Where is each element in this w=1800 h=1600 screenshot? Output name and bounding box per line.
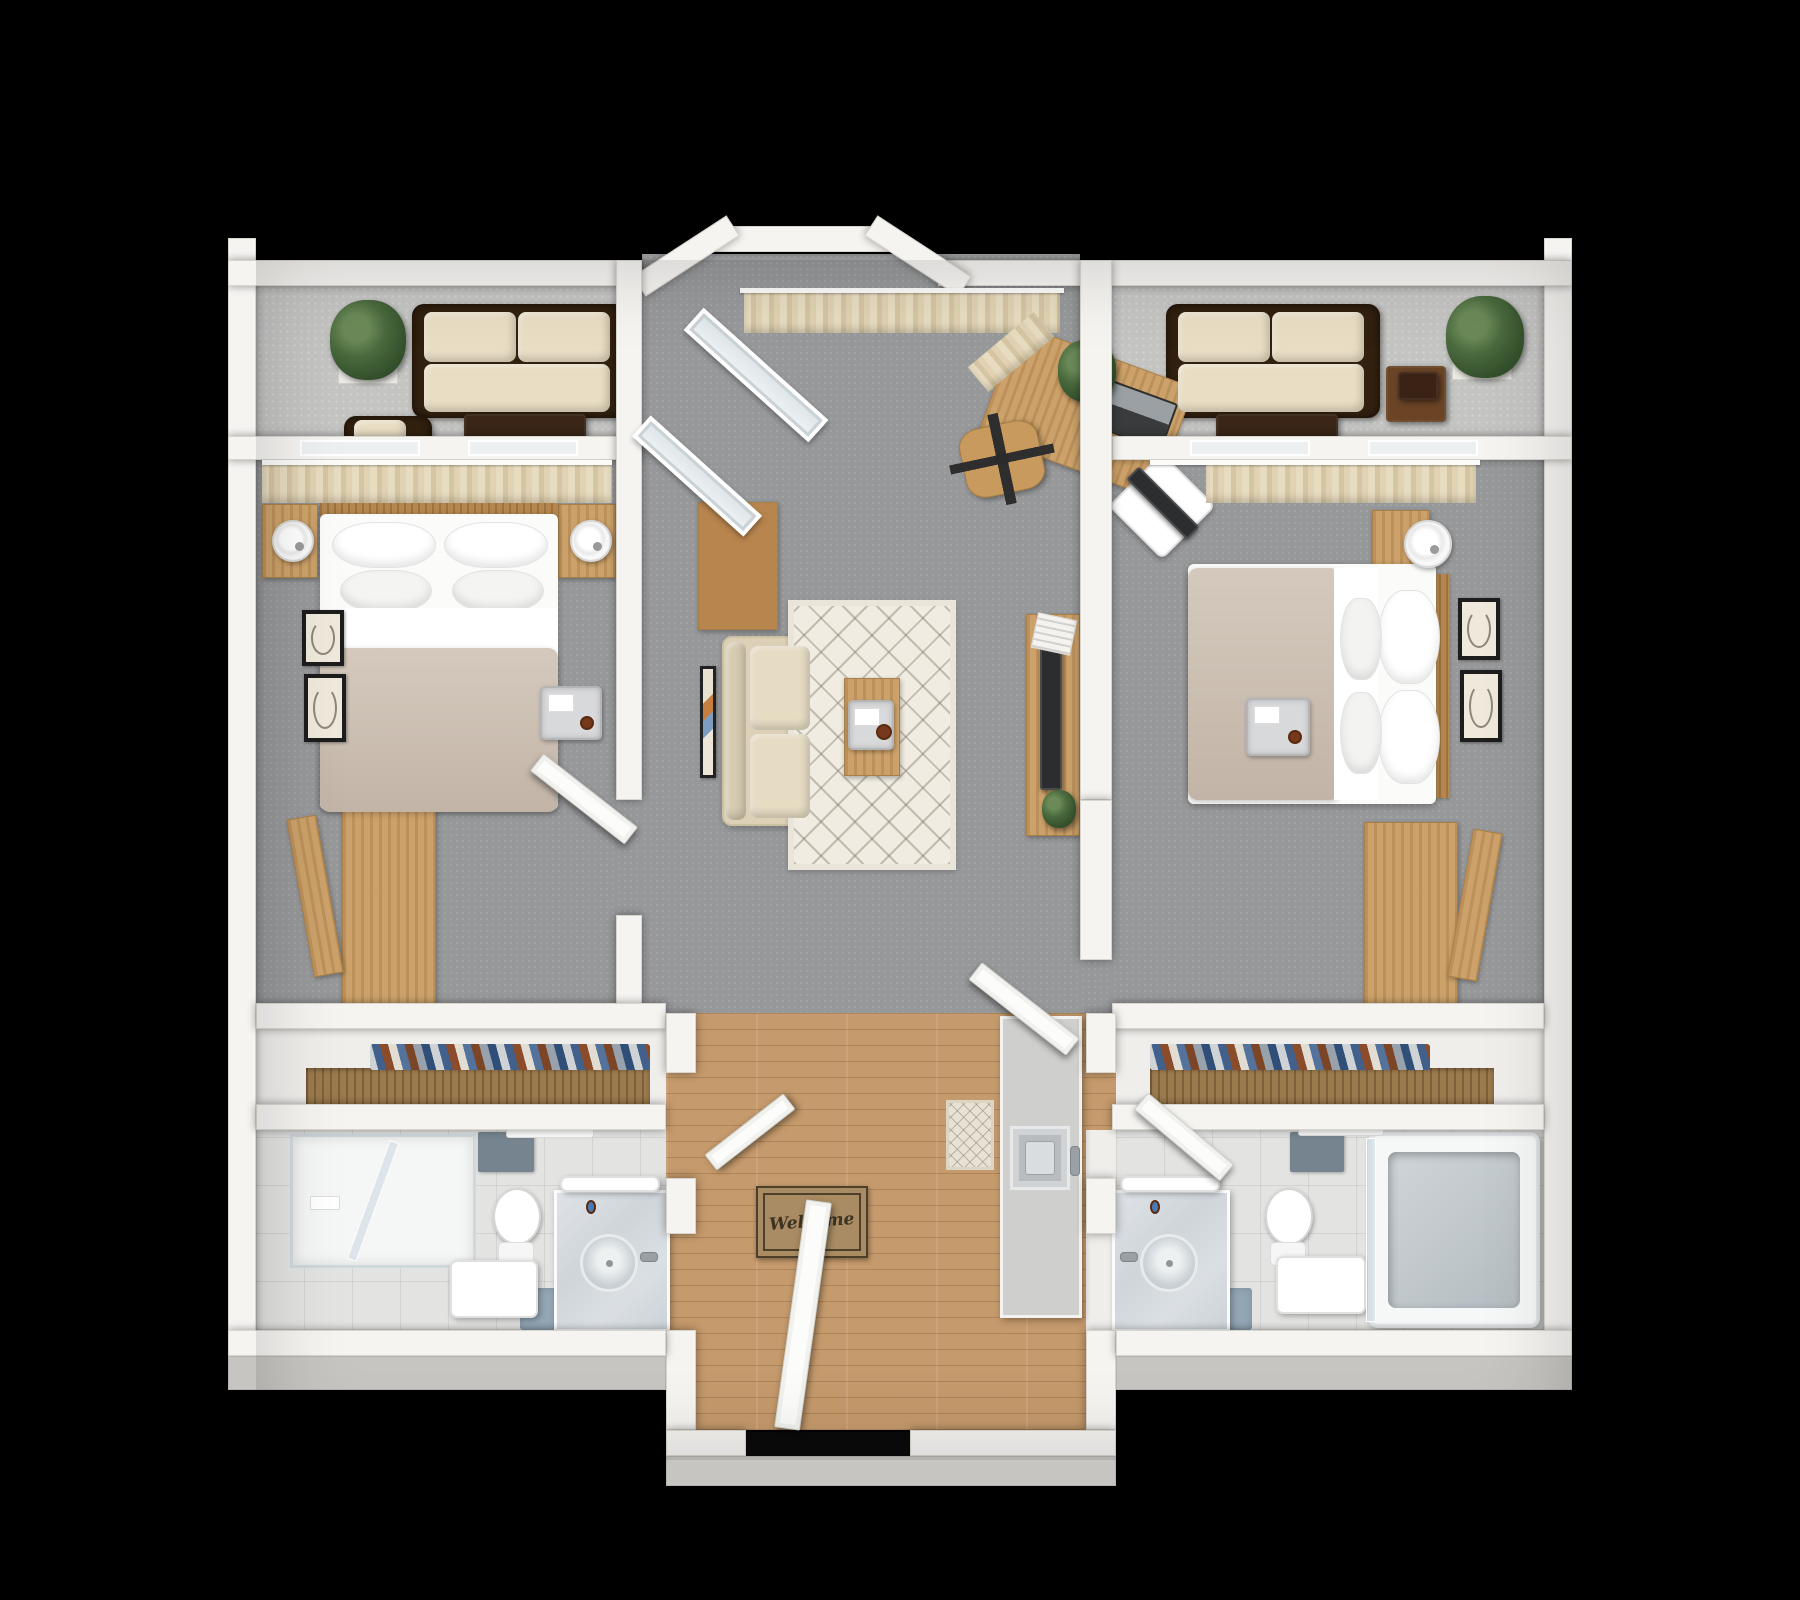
closet-right-rod-shelf (1150, 1068, 1494, 1104)
tray-right-cup (1288, 730, 1302, 744)
bed-left-pillow-2 (444, 522, 548, 568)
tray-left-paper (548, 694, 574, 712)
closet-left-rod-shelf (306, 1068, 650, 1104)
lamp-right (1404, 520, 1452, 568)
plant-balcony-right (1446, 296, 1524, 378)
wall-bottom-left (228, 1330, 666, 1356)
curtains-bedroom-left (262, 465, 612, 503)
closet-left-clothes (370, 1044, 650, 1070)
tray-left-cup (580, 716, 594, 730)
wall-living-east-lower (1080, 800, 1112, 960)
office-chair (956, 416, 1049, 501)
vanity-right-sink (1140, 1234, 1198, 1292)
wall-living-west-lower (616, 915, 642, 1013)
art-frame-left-1 (302, 610, 344, 666)
curtain-rod-bedroom-left (262, 460, 612, 465)
bed-right-pillow-1 (1378, 590, 1440, 684)
window-balcony-left-2 (468, 440, 578, 456)
wicker-sofa-right-cushion-2 (1272, 312, 1364, 362)
curtain-rod-bay (740, 288, 1064, 293)
wall-top-left (228, 260, 642, 286)
bed-left-pillow-3 (340, 570, 432, 612)
wall-bedroom-left-north (228, 436, 642, 460)
wall-living-east-upper (1080, 260, 1112, 800)
utility-sink (1010, 1126, 1070, 1190)
toilet-left (490, 1188, 540, 1266)
tv-living (1040, 636, 1062, 790)
door-gap-bedroom-right (1080, 960, 1112, 1013)
lamp-left-1 (272, 520, 314, 562)
bed-right-pillow-4 (1340, 692, 1382, 774)
utility-sink-faucet (1070, 1146, 1080, 1176)
vanity-right-doors (1120, 1176, 1220, 1192)
plant-console (1042, 790, 1076, 828)
wall-bedroom-right-north (1112, 436, 1572, 460)
wall-closet-right-top (1112, 1003, 1544, 1029)
bed-left-duvet (320, 648, 558, 812)
closet-right-clothes (1150, 1044, 1430, 1070)
wicker-sofa-right-cushion-1 (1178, 312, 1270, 362)
wicker-sofa-left-cushion-2 (518, 312, 610, 362)
tray-right-paper (1254, 706, 1280, 724)
curtains-bay (744, 293, 1060, 333)
sofa-living-cushion-1 (750, 646, 810, 730)
box-balcony-right (1398, 372, 1438, 400)
wall-face-left (228, 1356, 666, 1390)
wall-top-right (938, 260, 1572, 286)
window-balcony-right-2 (1368, 440, 1478, 456)
wall-closet-left-top (256, 1003, 666, 1029)
bed-right-pillow-2 (1378, 690, 1440, 784)
wall-living-west-upper (616, 260, 642, 800)
wardrobe-left (342, 808, 436, 1004)
shower-bench-left (450, 1260, 538, 1318)
wall-bay-top (714, 226, 890, 252)
bed-right-duvet (1188, 568, 1340, 800)
wall-outer-left (228, 238, 256, 1370)
wall-hall-west-c (666, 1330, 696, 1430)
wall-face-right (1116, 1356, 1572, 1390)
bathtub-right-inner (1388, 1152, 1520, 1308)
shower-bench-right (1276, 1256, 1366, 1314)
bathtub-right-glass (1366, 1138, 1376, 1322)
coffee-table-cup (876, 724, 892, 740)
vanity-right-toothbrush (1150, 1200, 1160, 1214)
wall-hall-east-c (1086, 1330, 1116, 1430)
lamp-left-2 (570, 520, 612, 562)
art-frame-right-1 (1458, 598, 1500, 660)
wall-outer-right (1544, 238, 1572, 1370)
towel-wall-right (1290, 1132, 1344, 1172)
wall-closet-left-bottom (256, 1104, 666, 1130)
wall-hall-east-b (1086, 1178, 1116, 1234)
art-frame-living (700, 666, 716, 778)
curtains-bedroom-right (1206, 465, 1476, 503)
vanity-left-faucet (640, 1252, 658, 1262)
wall-hall-east-a (1086, 1013, 1116, 1073)
runner-rug-hall (946, 1100, 994, 1170)
wicker-sofa-right-seat (1178, 364, 1364, 412)
wall-bottom-center-right (910, 1430, 1116, 1456)
vanity-left-doors (560, 1176, 660, 1192)
wicker-sofa-left-seat (424, 364, 610, 412)
sofa-living-back (726, 642, 746, 820)
vanity-left-toothbrush (586, 1200, 596, 1214)
toilet-right (1262, 1188, 1312, 1266)
bed-left-pillow-4 (452, 570, 544, 612)
art-frame-right-2 (1460, 670, 1502, 742)
towel-wall-left (478, 1132, 534, 1172)
wall-hall-west-b (666, 1178, 696, 1234)
wall-hall-west-a (666, 1013, 696, 1073)
window-balcony-right-1 (1190, 440, 1310, 456)
window-balcony-left-1 (300, 440, 420, 456)
wicker-sofa-left-cushion-1 (424, 312, 516, 362)
bed-right-pillow-3 (1340, 598, 1382, 680)
shower-left-bottles (310, 1196, 340, 1210)
bed-left-pillow-1 (332, 522, 436, 568)
vanity-left-sink (580, 1234, 638, 1292)
wall-bottom-center-left (666, 1430, 746, 1456)
wardrobe-right (1364, 822, 1458, 1006)
curtain-rod-bedroom-right (1150, 460, 1480, 465)
wall-bottom-right (1116, 1330, 1572, 1356)
sofa-living-cushion-2 (750, 734, 810, 818)
art-frame-left-2 (304, 674, 346, 742)
floor-plan-render: Welcome (0, 0, 1800, 1600)
wall-face-center (666, 1456, 1116, 1486)
vanity-right-faucet (1120, 1252, 1138, 1262)
coffee-table-paper (854, 708, 880, 726)
plant-balcony-left (330, 300, 406, 380)
